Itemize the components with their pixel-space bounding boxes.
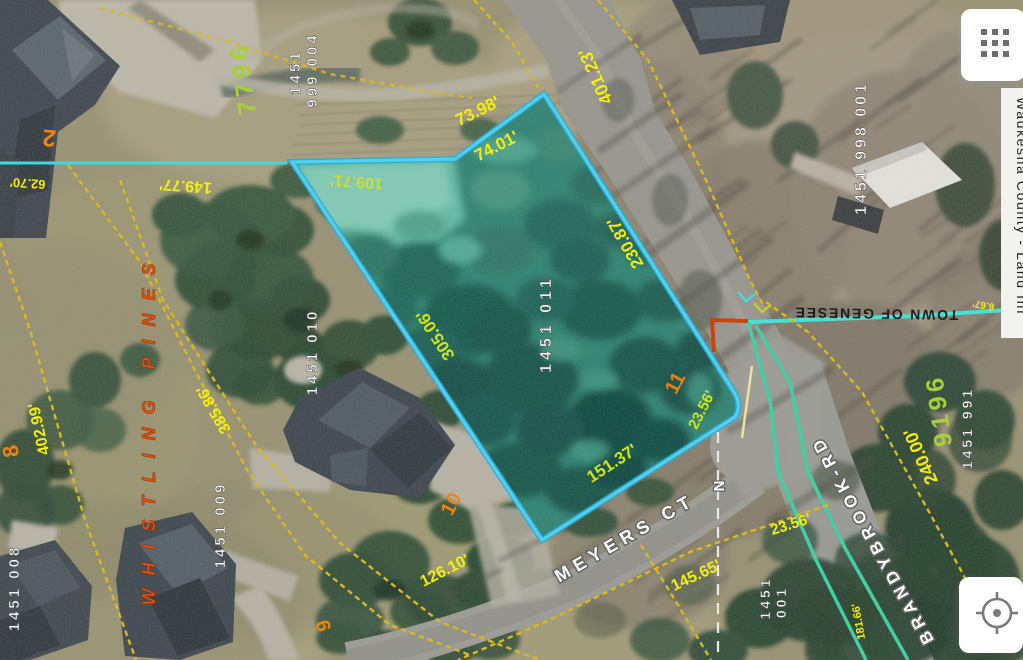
svg-text:2: 2 — [42, 123, 58, 151]
svg-text:1451 008: 1451 008 — [6, 545, 23, 632]
svg-text:N: N — [710, 481, 727, 492]
svg-text:Waukesha County - Land Inf: Waukesha County - Land Inf — [1014, 97, 1023, 316]
svg-text:1451 009: 1451 009 — [212, 482, 229, 569]
svg-text:1451 010: 1451 010 — [304, 309, 321, 396]
svg-text:TOWN OF GENESEE: TOWN OF GENESEE — [794, 305, 959, 324]
svg-text:WHISTLING PINES: WHISTLING PINES — [139, 250, 159, 605]
svg-text:1451 998 001: 1451 998 001 — [853, 81, 870, 215]
svg-text:1451: 1451 — [757, 576, 773, 619]
svg-text:999 004: 999 004 — [304, 32, 321, 107]
svg-text:1451 991: 1451 991 — [959, 387, 975, 469]
svg-text:62.70': 62.70' — [9, 175, 46, 192]
svg-text:1451 011: 1451 011 — [538, 275, 555, 373]
svg-text:1451: 1451 — [287, 49, 304, 94]
svg-text:001: 001 — [773, 586, 789, 618]
